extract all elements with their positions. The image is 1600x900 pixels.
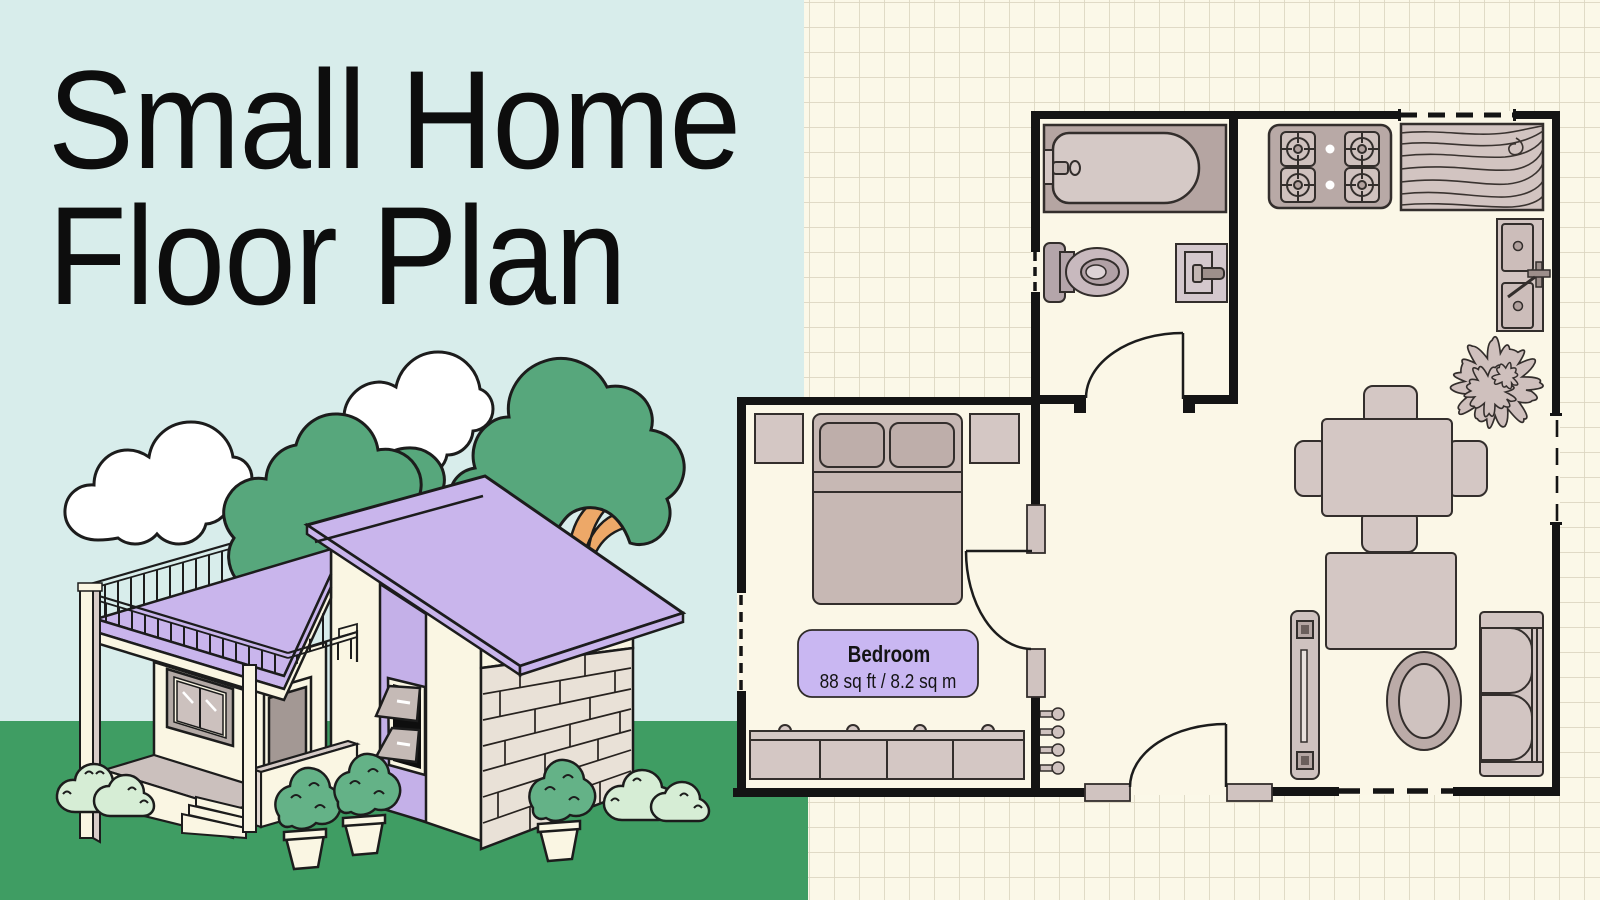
svg-text:Small Home: Small Home (48, 41, 740, 198)
svg-text:Bedroom: Bedroom (848, 641, 930, 668)
svg-text:Floor Plan: Floor Plan (48, 177, 626, 334)
svg-text:88 sq ft / 8.2 sq m: 88 sq ft / 8.2 sq m (820, 671, 957, 694)
